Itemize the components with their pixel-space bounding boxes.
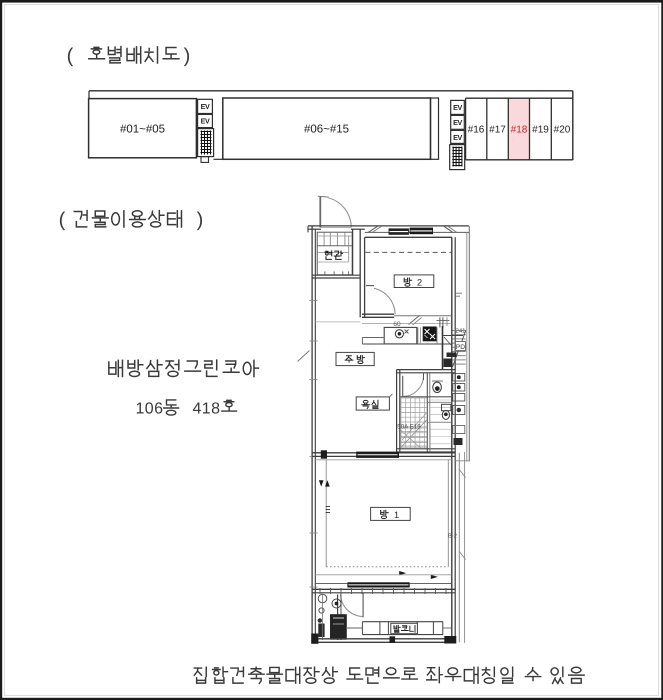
svg-text:106: 106 <box>136 401 164 418</box>
svg-text:#16: #16 <box>468 124 485 135</box>
svg-text:1: 1 <box>394 510 399 520</box>
svg-text:60: 60 <box>393 321 401 328</box>
svg-text:): ) <box>197 209 204 231</box>
svg-text:EV: EV <box>201 102 210 111</box>
svg-text:B-2: B-2 <box>448 533 457 540</box>
svg-text:(: ( <box>59 209 66 231</box>
svg-text:EV: EV <box>201 117 210 126</box>
svg-text:#20: #20 <box>554 124 571 135</box>
svg-text:2: 2 <box>417 278 422 288</box>
svg-text:#18: #18 <box>511 124 528 135</box>
svg-text:(: ( <box>67 45 74 67</box>
svg-text:50A E15: 50A E15 <box>397 423 421 430</box>
svg-text:): ) <box>184 45 191 67</box>
svg-text:EV: EV <box>453 103 462 112</box>
svg-text:#17: #17 <box>489 124 506 135</box>
svg-text:418: 418 <box>193 401 221 418</box>
svg-text:#06~#15: #06~#15 <box>304 124 349 136</box>
svg-text:EV: EV <box>453 133 462 142</box>
svg-text:PD: PD <box>456 344 465 351</box>
svg-text:EV: EV <box>453 118 462 127</box>
svg-text:#19: #19 <box>532 124 549 135</box>
svg-text:#01~#05: #01~#05 <box>120 124 165 136</box>
